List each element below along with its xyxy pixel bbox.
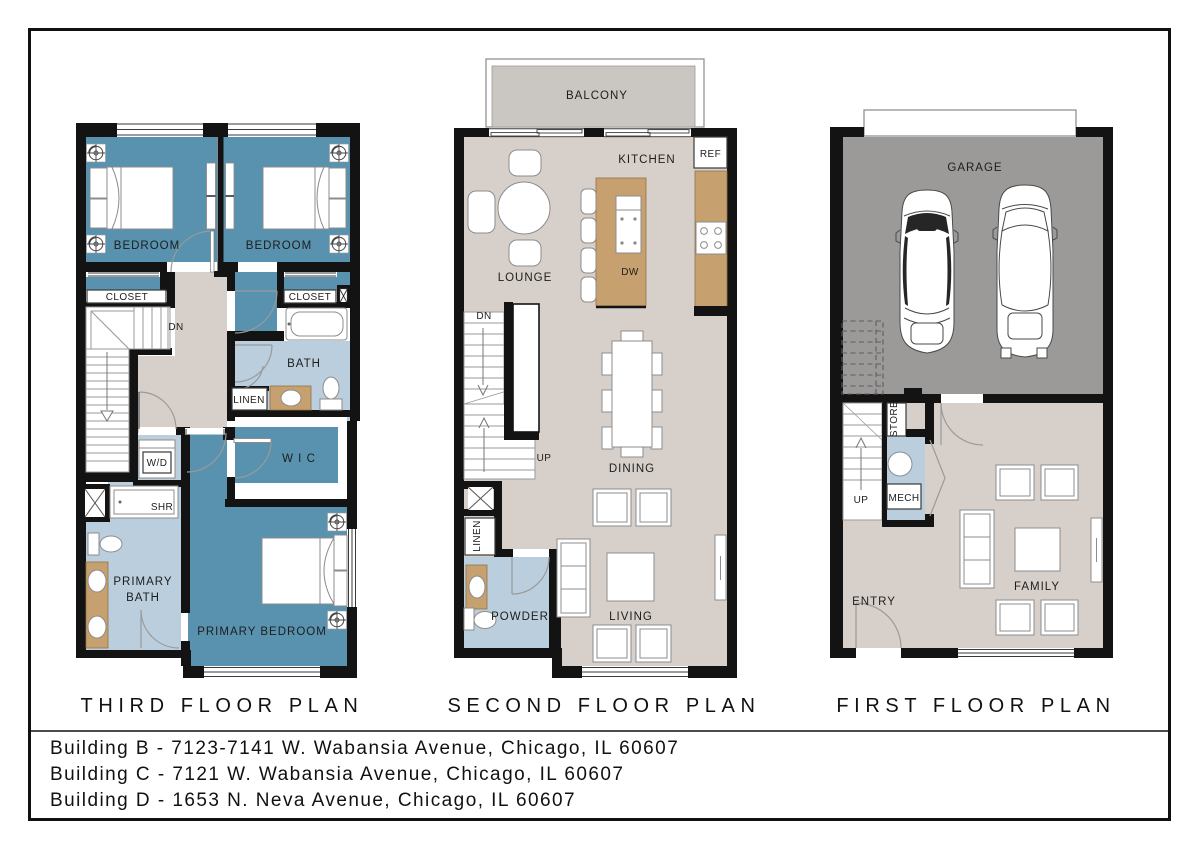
svg-text:BALCONY: BALCONY	[566, 90, 628, 102]
svg-text:LIVING: LIVING	[609, 611, 653, 623]
svg-text:BEDROOM: BEDROOM	[114, 240, 180, 252]
svg-text:FIRST FLOOR PLAN: FIRST FLOOR PLAN	[836, 695, 1115, 717]
svg-text:REF: REF	[700, 149, 721, 160]
svg-text:SECOND FLOOR PLAN: SECOND FLOOR PLAN	[447, 695, 760, 717]
svg-text:W/D: W/D	[147, 458, 168, 469]
svg-text:CLOSET: CLOSET	[106, 292, 148, 303]
svg-text:BATH: BATH	[126, 592, 160, 604]
svg-text:UP: UP	[854, 495, 869, 506]
svg-text:STORE: STORE	[889, 401, 900, 437]
svg-text:Building B - 7123-7141 W. Waba: Building B - 7123-7141 W. Wabansia Avenu…	[50, 738, 679, 759]
svg-text:PRIMARY BEDROOM: PRIMARY BEDROOM	[197, 626, 327, 638]
svg-text:BATH: BATH	[287, 358, 321, 370]
svg-text:GARAGE: GARAGE	[947, 162, 1002, 174]
svg-text:Building C - 7121 W. Wabansia: Building C - 7121 W. Wabansia Avenue, Ch…	[50, 764, 624, 785]
svg-text:FAMILY: FAMILY	[1014, 581, 1060, 593]
svg-text:CLOSET: CLOSET	[289, 292, 331, 303]
svg-text:DN: DN	[168, 322, 183, 333]
svg-text:POWDER: POWDER	[491, 611, 549, 623]
svg-text:BEDROOM: BEDROOM	[246, 240, 312, 252]
svg-text:DN: DN	[476, 311, 491, 322]
svg-text:THIRD FLOOR PLAN: THIRD FLOOR PLAN	[81, 695, 364, 717]
svg-text:W I C: W I C	[282, 453, 316, 465]
svg-text:MECH: MECH	[888, 493, 919, 504]
svg-text:LINEN: LINEN	[472, 520, 483, 551]
svg-text:Building D - 1653 N. Neva Aven: Building D - 1653 N. Neva Avenue, Chicag…	[50, 790, 576, 811]
svg-text:LOUNGE: LOUNGE	[498, 272, 553, 284]
svg-text:UP: UP	[537, 453, 552, 464]
svg-text:DW: DW	[621, 267, 639, 278]
svg-text:SHR: SHR	[151, 502, 173, 513]
svg-text:PRIMARY: PRIMARY	[113, 576, 172, 588]
svg-text:DINING: DINING	[609, 463, 655, 475]
svg-text:KITCHEN: KITCHEN	[618, 154, 675, 166]
svg-text:ENTRY: ENTRY	[852, 596, 896, 608]
svg-text:LINEN: LINEN	[233, 395, 264, 406]
